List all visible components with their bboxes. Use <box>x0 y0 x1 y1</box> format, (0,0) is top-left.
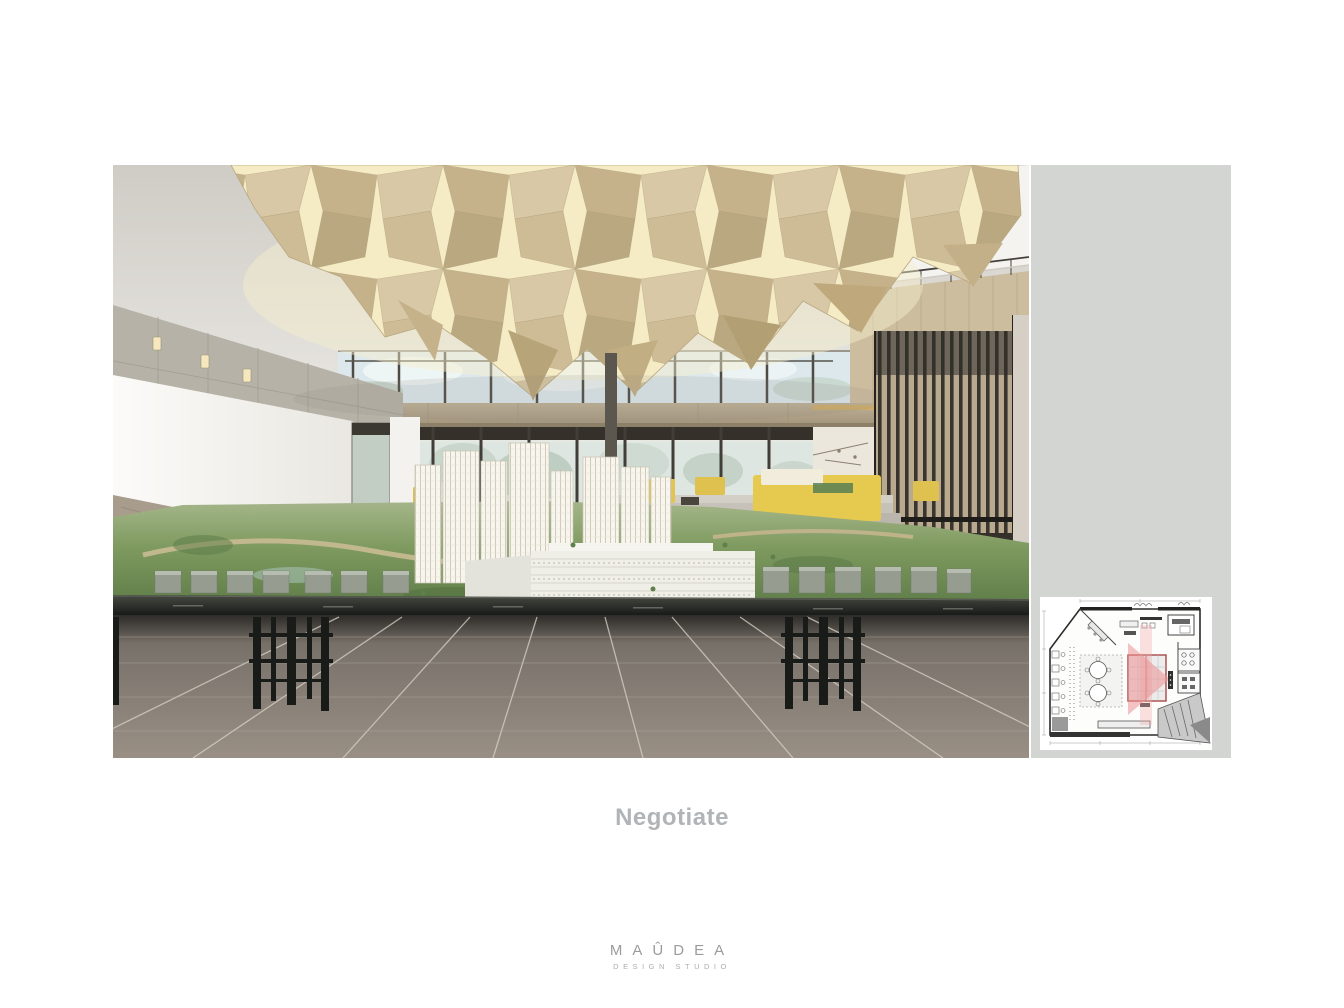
floor-plan-drawing <box>1040 597 1212 750</box>
plan-service-rooms <box>1178 642 1200 693</box>
studio-logo: MAÛDEA DESIGN STUDIO <box>0 942 1344 971</box>
caption-title: Negotiate <box>0 804 1344 832</box>
side-panel <box>1031 165 1231 758</box>
slide-canvas <box>113 165 1231 758</box>
plan-top-right-room <box>1168 615 1194 635</box>
plan-mat <box>1052 717 1068 731</box>
plan-negotiation-seating <box>1080 655 1122 707</box>
logo-wordmark: MAÛDEA <box>0 942 1344 959</box>
interior-rendering <box>113 165 1029 758</box>
floor-plan-thumbnail <box>1040 597 1212 750</box>
vertical-slats <box>875 331 1013 537</box>
presentation-page: Negotiate MAÛDEA DESIGN STUDIO <box>0 0 1344 1008</box>
logo-subtitle: DESIGN STUDIO <box>0 962 1344 971</box>
interior-rendering-graphic <box>113 165 1029 758</box>
